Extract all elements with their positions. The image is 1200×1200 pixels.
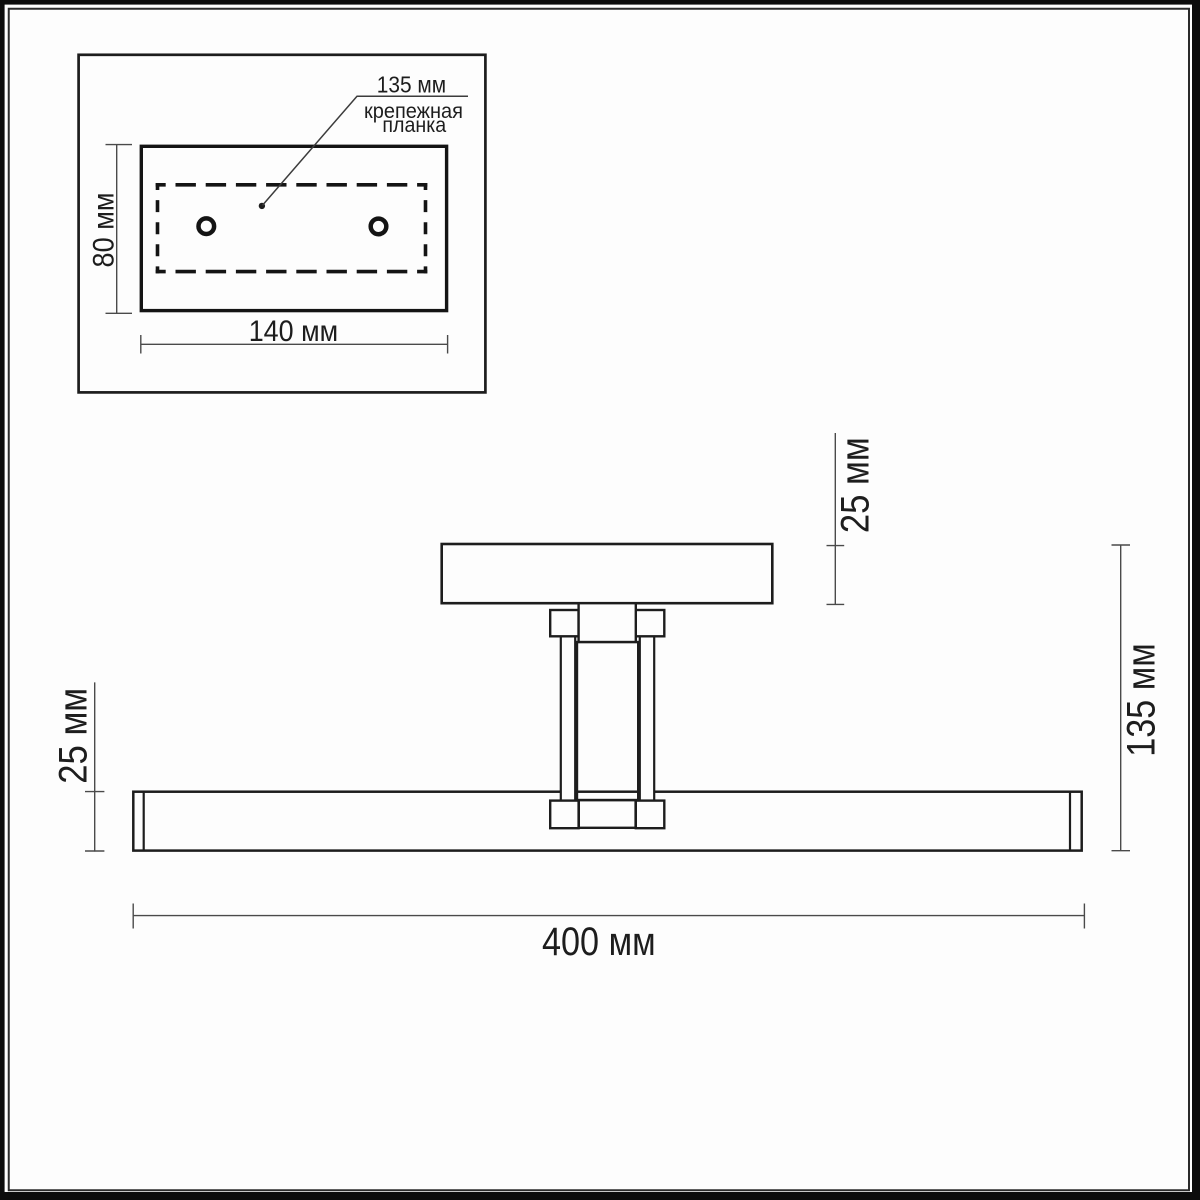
svg-text:400 мм: 400 мм: [542, 920, 656, 964]
svg-text:25 мм: 25 мм: [834, 437, 878, 533]
svg-text:планка: планка: [382, 113, 446, 137]
svg-text:25 мм: 25 мм: [52, 688, 96, 784]
svg-text:135 мм: 135 мм: [377, 72, 446, 98]
svg-text:80 мм: 80 мм: [88, 193, 121, 268]
svg-text:135 мм: 135 мм: [1120, 643, 1164, 756]
svg-text:140 мм: 140 мм: [249, 315, 338, 348]
